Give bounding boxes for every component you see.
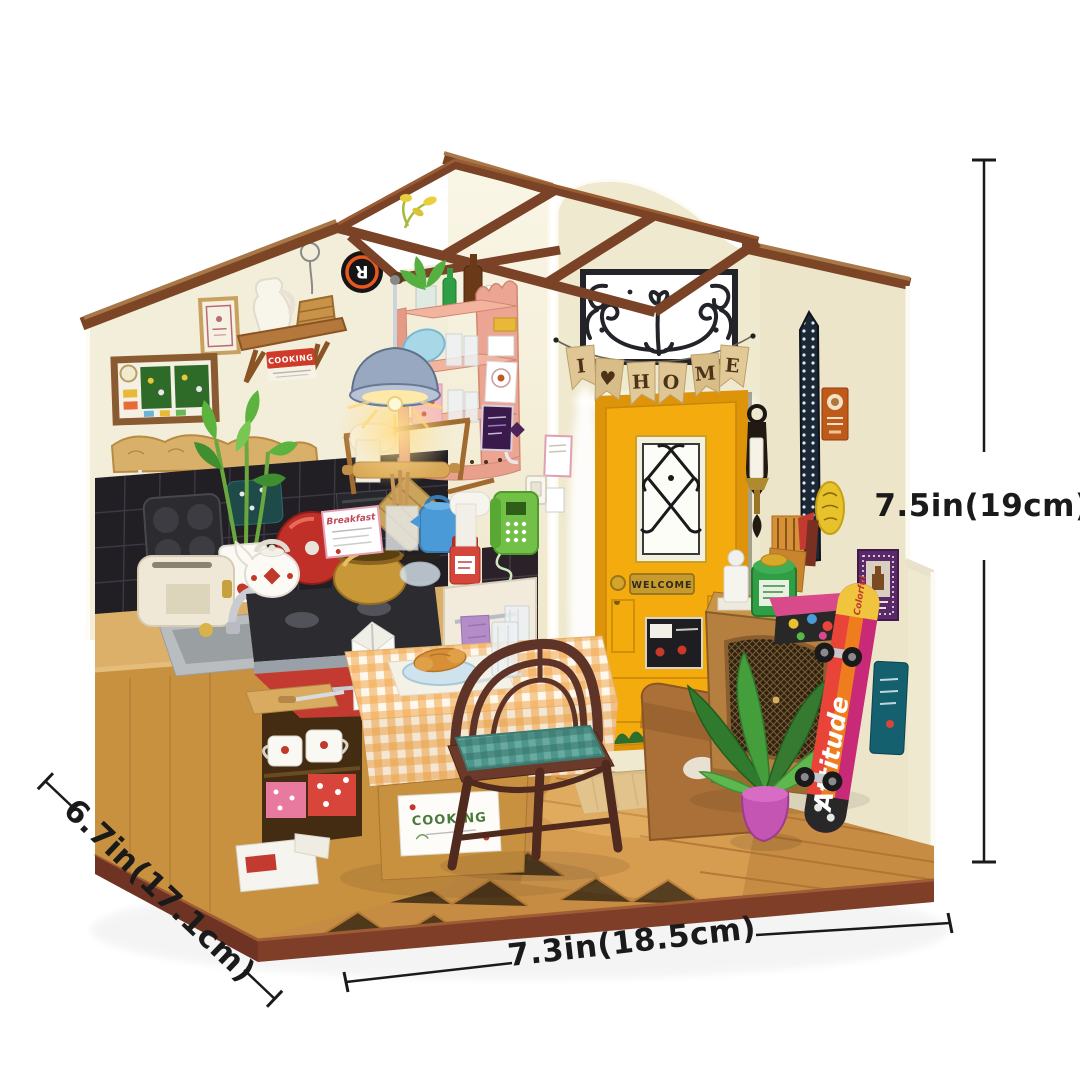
corkboard-frame <box>114 357 216 422</box>
glass-bowl <box>400 562 440 586</box>
logo-letter: R <box>355 261 368 281</box>
door-knob <box>611 576 625 590</box>
gold-soap <box>199 623 213 637</box>
product-photo-miniature-kitchen: WELCOME I ♥ H O <box>0 0 1080 1080</box>
glass-1 <box>446 334 462 366</box>
menu-card: Breakfast <box>322 506 383 558</box>
note-card <box>488 336 514 356</box>
certificate-frame <box>200 298 239 354</box>
toaster <box>138 556 234 626</box>
glass-2 <box>464 336 478 366</box>
teal-sign <box>870 661 909 755</box>
counter-cubby <box>262 698 362 848</box>
banner-letter: H <box>631 371 650 394</box>
table-cooking-label: COOKING <box>398 791 501 856</box>
illustration-canvas: WELCOME I ♥ H O <box>0 0 1080 1080</box>
height-label: 7.5in(19cm) <box>874 488 1080 524</box>
banner-letter: E <box>724 354 740 377</box>
banner-letter: M <box>694 362 717 385</box>
wreath-card <box>485 361 517 403</box>
lamp-bulb <box>388 397 402 411</box>
wall-note-2 <box>546 488 564 512</box>
cooking-wall-sign: COOKING <box>266 348 316 382</box>
banner-letter: ♥ <box>598 367 617 390</box>
door-window <box>643 444 699 554</box>
mug <box>264 736 303 766</box>
welcome-label: WELCOME <box>631 580 692 591</box>
banner-letter: O <box>662 371 680 394</box>
mug <box>306 730 347 762</box>
snack-tag <box>494 318 516 331</box>
scrollwork-panel <box>583 272 735 362</box>
pink-gift-box <box>266 782 306 818</box>
wall-note-1 <box>544 436 571 477</box>
orange-poster <box>822 388 848 440</box>
purple-poster <box>481 405 513 450</box>
yellow-oval-sticker <box>816 482 844 534</box>
